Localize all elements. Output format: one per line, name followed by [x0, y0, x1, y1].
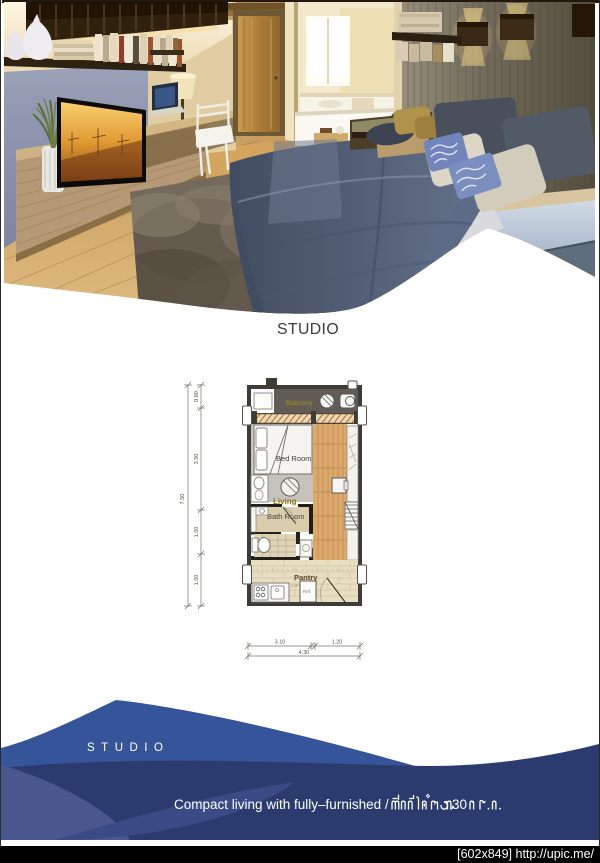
- svg-text:Balcony: Balcony: [286, 398, 313, 407]
- svg-text:7.50: 7.50: [180, 494, 186, 505]
- svg-text:Compact living with fully–furn: Compact living with fully–furnished /: [174, 797, 389, 812]
- svg-text:Ref.: Ref.: [303, 589, 311, 594]
- svg-text:3.10: 3.10: [275, 640, 286, 646]
- svg-text:0.80: 0.80: [194, 391, 200, 402]
- svg-text:4.30: 4.30: [299, 650, 310, 656]
- svg-text:Bath Room: Bath Room: [267, 512, 305, 521]
- svg-text:3.50: 3.50: [194, 454, 200, 465]
- svg-text:1.20: 1.20: [332, 640, 343, 646]
- svg-text:30: 30: [452, 797, 467, 812]
- svg-text:1.50: 1.50: [194, 527, 200, 538]
- svg-text:STUDIO: STUDIO: [87, 742, 169, 754]
- svg-text:1.50: 1.50: [194, 575, 200, 586]
- svg-text:Bed Room: Bed Room: [276, 454, 311, 463]
